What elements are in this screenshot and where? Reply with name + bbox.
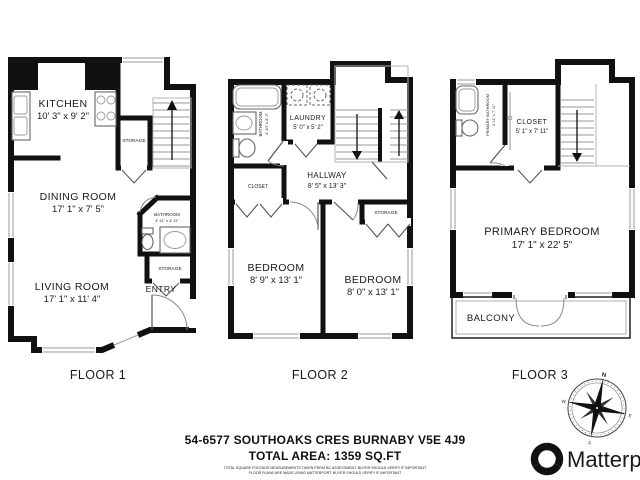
floorplan-sheet: KITCHEN 10' 3" x 9' 2" DINING ROOM 17' 1… (0, 0, 640, 480)
floor3-closet-dims: 5' 1" x 7' 11" (516, 129, 548, 135)
floor3-caption: FLOOR 3 (512, 368, 568, 382)
floor2-laundry-dims: 5' 0" x 5' 2" (293, 125, 323, 131)
floor3-primary-bedroom-label: PRIMARY BEDROOM (484, 226, 600, 238)
floor2-plan: BATHROOM 4' 10" x 8' 2" LAUNDRY 5' 0" x … (227, 64, 414, 340)
floor1-entry-door (152, 295, 198, 330)
floor3-window-right (628, 188, 636, 230)
kitchen-sink-icon (12, 92, 30, 140)
floor2-hallway-label: HALLWAY (307, 171, 347, 180)
floor3-closet-label: CLOSET (517, 119, 548, 126)
floor3-primary-bathroom-dims: 4' 11" x 7' 11" (492, 103, 496, 126)
floor1-window-bottom (42, 346, 96, 354)
matterport-wordmark: Matterport (567, 447, 640, 472)
compass-east-label: E (628, 413, 632, 419)
floor2-laundry-door (293, 138, 317, 157)
floor2-window-right (406, 248, 414, 286)
floor1-dining-dims: 17' 1" x 7' 5" (52, 204, 104, 215)
floor1-bathroom-dims: 4' 11" x 4' 11" (155, 218, 179, 223)
stove-icon (95, 92, 116, 126)
floor2-bedroom-right-dims: 8' 0" x 13' 1" (347, 287, 399, 298)
fridge-block-icon (11, 60, 38, 90)
matterport-logo-icon (530, 445, 559, 476)
floor3-primary-bedroom-dims: 17' 1" x 22' 5" (512, 240, 573, 251)
floor2-window-left (227, 248, 235, 286)
floor3-primary-bathroom-label: PRIMARY BATHROOM (485, 94, 490, 136)
washer-icon (287, 85, 307, 105)
property-address: 54-6577 SOUTHOAKS CRES BURNABY V5E 4J9 (185, 433, 466, 447)
floor2-closet-doors (235, 198, 283, 217)
floor3-closet-door (514, 164, 544, 183)
floor1-entry-label: ENTRY (146, 284, 177, 294)
floor1-kitchen-label: KITCHEN (39, 98, 88, 110)
floor2-storage-label: STORAGE (374, 210, 397, 216)
matterport-logo: Matterport (530, 445, 640, 476)
floor1-window-left-living (7, 262, 15, 306)
compass-north-label: N (601, 372, 606, 379)
floor1-diagonal-door (114, 335, 138, 345)
floor2-sink-icon (233, 112, 256, 134)
floor2-bedroom-left-dims: 8' 9" x 13' 1" (250, 275, 302, 286)
floor1-plan: KITCHEN 10' 3" x 9' 2" DINING ROOM 17' 1… (7, 56, 198, 354)
compass-west-label: W (561, 399, 567, 405)
floor1-stairs (153, 98, 191, 168)
floor3-balcony-label: BALCONY (467, 313, 515, 324)
floor1-caption: FLOOR 1 (70, 368, 126, 382)
floor2-laundry-label: LAUNDRY (290, 115, 326, 122)
floor2-caption: FLOOR 2 (292, 368, 348, 382)
floor3-window-left (449, 188, 457, 230)
floor2-storage-doors (365, 218, 411, 237)
floor3-toilet-icon (456, 120, 478, 136)
floor1-storage-lower-label: STORAGE (158, 266, 181, 272)
floor1-kitchen-dims: 10' 3" x 9' 2" (37, 111, 89, 122)
floor2-bedroom-right-label: BEDROOM (344, 274, 401, 286)
floor2-bathroom-dims: 4' 10" x 8' 2" (264, 112, 269, 135)
floor3-bathroom-door (490, 145, 509, 166)
compass-south-label: S (588, 440, 592, 446)
floor2-bathtub-icon (233, 85, 281, 109)
floor1-bathroom-label: BATHROOM (154, 212, 180, 217)
dryer-icon (310, 85, 330, 105)
balcony-french-doors (512, 291, 568, 326)
floor2-toilet-icon (233, 139, 255, 157)
floor2-bathroom-door (268, 140, 288, 166)
closet-rail-icon (508, 92, 512, 150)
floor3-window-bottom-left (463, 291, 492, 299)
floor2-window-bottom-left (253, 332, 300, 340)
floor2-bedroom-right-door (332, 198, 358, 220)
floor2-bathroom-label: BATHROOM (258, 111, 263, 136)
floor1-living-dims: 17' 1" x 11' 4" (44, 294, 101, 305)
floor1-storage-upper-door (121, 165, 147, 183)
floor3-plan: PRIMARY BATHROOM 4' 11" x 7' 11" CLOSET … (449, 62, 636, 338)
floor1-living-label: LIVING ROOM (35, 281, 109, 293)
floor3-window-top (456, 78, 476, 86)
floor3-bathtub-icon (456, 86, 478, 114)
floor2-bedroom-left-label: BEDROOM (247, 262, 304, 274)
floor1-dining-label: DINING ROOM (40, 191, 117, 203)
floor1-window-top (122, 56, 164, 64)
floor1-bathroom-fixtures (142, 227, 190, 253)
floor1-window-left-dining (7, 192, 15, 238)
floor2-closet-label: CLOSET (248, 184, 268, 190)
disclaimer-line1: TOTAL SQUARE FOOTAGE MEASUREMENTS TAKEN … (224, 466, 427, 470)
floor2-bedroom-left-door (289, 198, 319, 230)
floor3-stairs (560, 100, 594, 163)
floor2-window-bottom-right (358, 332, 392, 340)
disclaimer-line2: FLOOR PLANS ARE MADE USING MATTERPORT. B… (249, 471, 402, 475)
floor2-hallway-dims: 8' 5" x 13' 3" (308, 183, 347, 190)
floor3-outer-walls (453, 62, 632, 295)
cabinet-block-icon (85, 60, 116, 90)
total-area: TOTAL AREA: 1359 SQ.FT (249, 449, 402, 463)
floor3-window-bottom-right (575, 291, 612, 299)
floor1-storage-upper-label: STORAGE (122, 138, 145, 144)
